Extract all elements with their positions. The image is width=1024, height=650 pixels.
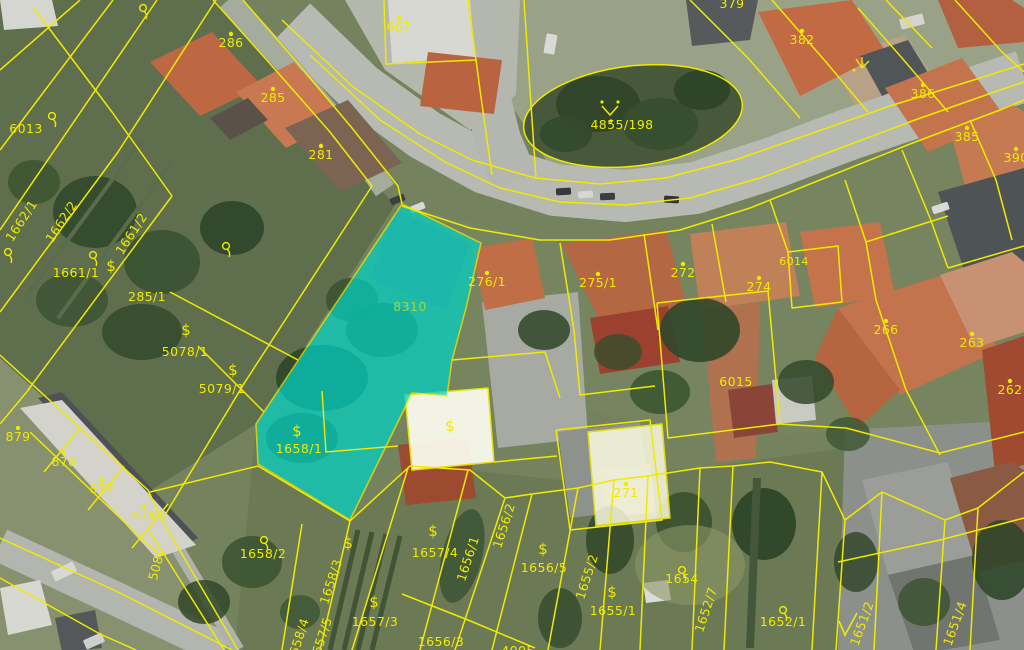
- parcel-point-marker: [271, 87, 275, 91]
- parcel-label: 6014: [779, 255, 809, 268]
- parcel-label: 276/1: [468, 274, 506, 289]
- parcel-label: 4855/198: [590, 117, 653, 132]
- vegetation: [222, 536, 282, 588]
- land-use-symbol-dollar: $: [343, 534, 353, 552]
- vegetation: [898, 578, 950, 626]
- parcel-label: 263: [959, 335, 984, 350]
- parcel-point-marker: [624, 482, 628, 486]
- parcel-label: 1655/1: [590, 603, 636, 618]
- land-use-symbol-dollar: $: [428, 522, 438, 540]
- parcel-label: 390: [1003, 150, 1024, 165]
- vegetation: [518, 310, 570, 350]
- parcel-label: 5078/1: [162, 344, 208, 359]
- vehicle: [578, 190, 593, 198]
- parcel-label: 1661/1: [53, 265, 99, 280]
- vegetation: [200, 201, 264, 255]
- parcel-label: 275/1: [579, 275, 617, 290]
- parcel-point-marker: [965, 126, 969, 130]
- land-use-symbol-dollar: $: [369, 593, 379, 611]
- vegetation: [540, 116, 592, 152]
- parcel-label: 1656/3: [418, 634, 464, 649]
- parcel-point-marker: [229, 32, 233, 36]
- vegetation: [630, 370, 690, 414]
- vegetation: [660, 298, 740, 362]
- parcel-label: 272: [670, 265, 695, 280]
- parcel-point-marker: [1008, 379, 1012, 383]
- parcel-label: 1656/5: [521, 560, 567, 575]
- parcel-label: 667: [386, 19, 411, 34]
- parcel-label: 878: [51, 454, 76, 469]
- parcel-label: 1657/4: [412, 545, 458, 560]
- parcel-label: 379: [719, 0, 744, 11]
- land-use-symbol-dollar: $: [607, 583, 617, 601]
- parcel-label: 1654: [665, 571, 698, 586]
- parcel-label: 1658/2: [240, 546, 286, 561]
- vegetation: [778, 360, 834, 404]
- parcel-point-marker: [884, 319, 888, 323]
- parcel-label: 876: [131, 508, 156, 523]
- parcel-label: 6015: [719, 374, 752, 389]
- parcel-point-marker: [485, 271, 489, 275]
- land-use-symbol-dollar: $: [181, 321, 191, 339]
- parcel-point-marker: [757, 276, 761, 280]
- vegetation: [674, 70, 730, 110]
- parcel-label: 285: [260, 90, 285, 105]
- parcel-point-marker: [1014, 147, 1018, 151]
- parcel-label: 879: [5, 429, 30, 444]
- parcel-point-marker: [596, 272, 600, 276]
- parcel-point-marker: [142, 505, 146, 509]
- parcel-label: 266: [873, 322, 898, 337]
- land-use-symbol-vdots: [600, 100, 603, 103]
- vegetation: [594, 334, 642, 370]
- land-use-symbol-tuft: [853, 69, 856, 72]
- parcel-label: 286: [218, 35, 243, 50]
- parcel-label: 4005: [501, 643, 534, 650]
- land-use-symbol-vdots: [616, 100, 619, 103]
- parcel-label: 5079/1: [199, 381, 245, 396]
- cadastral-map[interactable]: $$$$$$$$$$28628528166760134855/198379382…: [0, 0, 1024, 650]
- land-use-symbol-dollar: $: [228, 361, 238, 379]
- parcel-point-marker: [62, 451, 66, 455]
- land-use-symbol-dollar: $: [106, 257, 116, 275]
- parcel-point-marker: [100, 478, 104, 482]
- parcel-point-marker: [970, 332, 974, 336]
- building-roof: [0, 0, 58, 30]
- parcel-label: 8310: [393, 299, 426, 314]
- parcel-label: 1657/3: [352, 614, 398, 629]
- land-use-symbol-dollar: $: [292, 422, 302, 440]
- cadastral-map-view[interactable]: $$$$$$$$$$28628528166760134855/198379382…: [0, 0, 1024, 650]
- parcel-label: 385: [954, 129, 979, 144]
- vegetation: [732, 488, 796, 560]
- land-use-symbol-dollar: $: [445, 417, 455, 435]
- vehicle: [556, 187, 571, 195]
- parcel-label: 262: [997, 382, 1022, 397]
- parcel-point-marker: [319, 144, 323, 148]
- parcel-label: 281: [308, 147, 333, 162]
- land-use-symbol-dollar: $: [538, 540, 548, 558]
- parcel-label: 386: [910, 86, 935, 101]
- parcel-label: 271: [613, 485, 638, 500]
- parcel-label: 877: [89, 481, 114, 496]
- vegetation: [8, 160, 60, 204]
- parcel-point-marker: [397, 16, 401, 20]
- parcel-label: 274: [746, 279, 771, 294]
- parcel-label: 1658/1: [276, 441, 322, 456]
- vehicle: [600, 193, 615, 201]
- parcel-label: 6013: [9, 121, 42, 136]
- parcel-label: 285/1: [128, 289, 166, 304]
- parcel-label: 1652/1: [760, 614, 806, 629]
- parcel-point-marker: [921, 83, 925, 87]
- parcel-point-marker: [681, 262, 685, 266]
- parcel-point-marker: [16, 426, 20, 430]
- parcel-point-marker: [800, 29, 804, 33]
- vegetation: [826, 417, 870, 451]
- parcel-label: 382: [789, 32, 814, 47]
